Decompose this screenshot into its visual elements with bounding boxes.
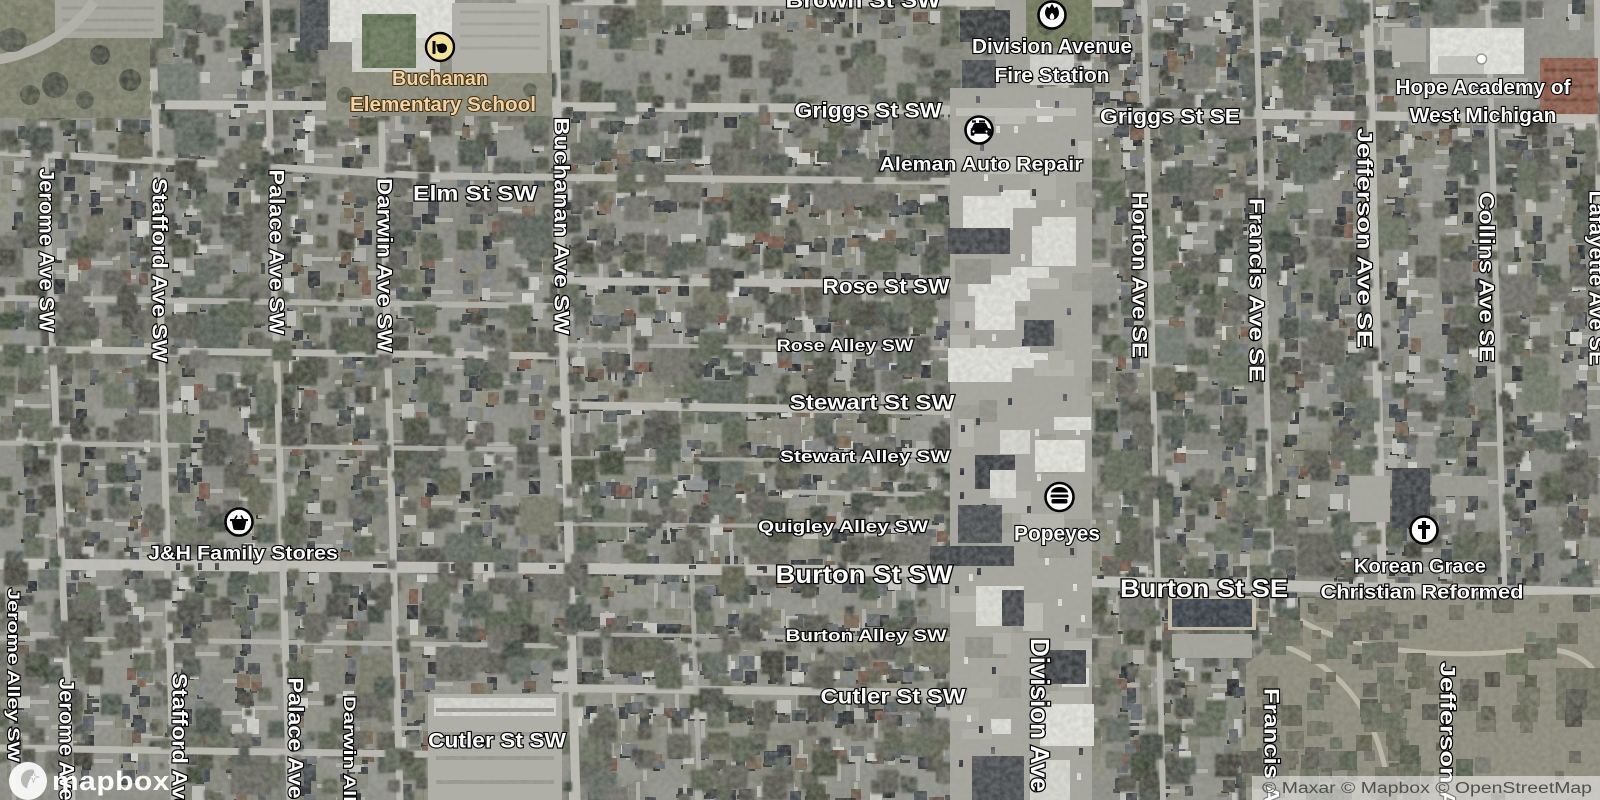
svg-text:Griggs St SE: Griggs St SE (1100, 105, 1240, 128)
svg-text:Griggs St SW: Griggs St SW (795, 99, 942, 122)
svg-text:West Michigan: West Michigan (1410, 105, 1557, 127)
svg-text:mapbox: mapbox (52, 766, 170, 796)
svg-text:J&H Family Stores: J&H Family Stores (148, 544, 338, 565)
svg-text:Jerome Alley SW: Jerome Alley SW (4, 588, 23, 763)
svg-text:Burton Alley SW: Burton Alley SW (786, 626, 948, 645)
svg-text:Cutler St SW: Cutler St SW (428, 729, 566, 752)
svg-text:Palace Ave SW: Palace Ave SW (265, 170, 288, 335)
svg-text:Elm St SW: Elm St SW (413, 182, 537, 205)
svg-text:Stafford Ave SW: Stafford Ave SW (168, 673, 191, 800)
svg-text:Cutler St SW: Cutler St SW (821, 685, 966, 708)
svg-text:Horton Ave SE: Horton Ave SE (1128, 192, 1151, 358)
svg-text:Quigley Alley SW: Quigley Alley SW (758, 517, 929, 536)
svg-text:Lafayette Ave SE: Lafayette Ave SE (1585, 191, 1600, 366)
svg-text:Buchanan Ave SW: Buchanan Ave SW (550, 118, 573, 335)
svg-text:Aleman Auto Repair: Aleman Auto Repair (880, 155, 1084, 176)
svg-text:Brown St SW: Brown St SW (786, 0, 941, 13)
svg-text:Division Avenue: Division Avenue (972, 36, 1132, 58)
svg-text:Hope Academy of: Hope Academy of (1396, 77, 1571, 99)
svg-text:Francis Ave SE: Francis Ave SE (1245, 198, 1268, 382)
svg-text:Fire Station: Fire Station (995, 65, 1110, 87)
svg-text:Burton St SW: Burton St SW (776, 561, 953, 589)
svg-text:Stewart St SW: Stewart St SW (790, 391, 955, 414)
svg-text:Stewart Alley SW: Stewart Alley SW (780, 447, 951, 466)
svg-text:Rose St SW: Rose St SW (823, 275, 950, 298)
svg-text:Elementary School: Elementary School (350, 94, 536, 116)
svg-text:© Maxar © Mapbox © OpenStreetM: © Maxar © Mapbox © OpenStreetMap (1262, 780, 1592, 797)
svg-text:Burton St SE: Burton St SE (1120, 575, 1288, 603)
svg-text:Division Ave: Division Ave (1025, 638, 1055, 792)
svg-text:Darwin Alley SW: Darwin Alley SW (340, 696, 359, 800)
svg-text:Palace Ave SW: Palace Ave SW (284, 678, 307, 800)
svg-text:Rose Alley SW: Rose Alley SW (777, 336, 915, 355)
svg-text:Collins Ave SE: Collins Ave SE (1475, 192, 1498, 362)
svg-text:Christian Reformed: Christian Reformed (1321, 583, 1524, 604)
svg-text:Korean Grace: Korean Grace (1354, 557, 1486, 578)
svg-text:Jefferson Ave SE: Jefferson Ave SE (1353, 128, 1376, 348)
svg-text:Buchanan: Buchanan (392, 68, 488, 90)
svg-text:Jerome Ave SW: Jerome Ave SW (35, 168, 58, 332)
svg-text:Darwin Ave SW: Darwin Ave SW (373, 178, 396, 352)
svg-text:Popeyes: Popeyes (1014, 522, 1100, 545)
svg-text:Stafford Ave SW: Stafford Ave SW (148, 178, 171, 362)
